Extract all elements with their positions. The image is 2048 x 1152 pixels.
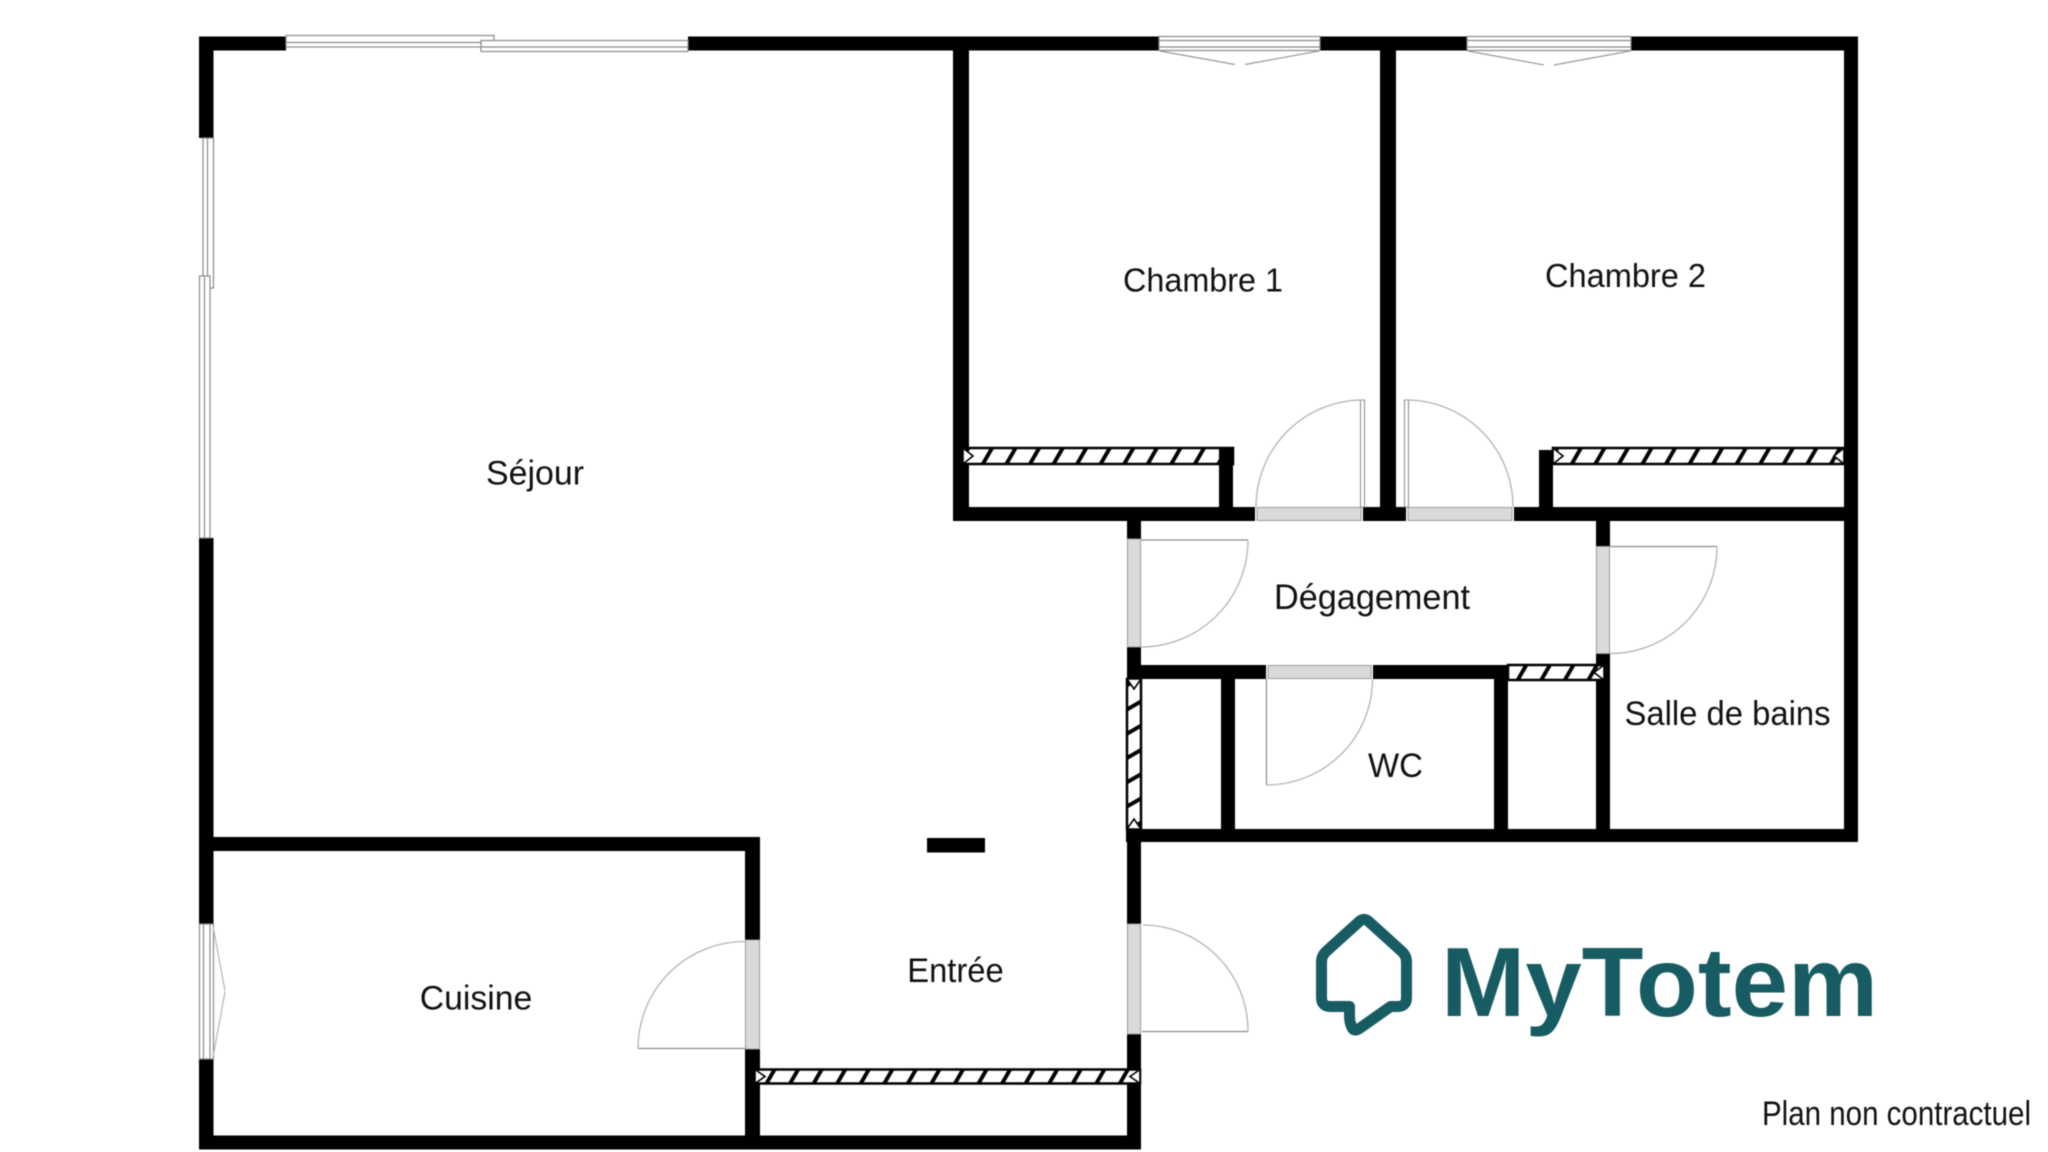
svg-text:Plan non contractuel: Plan non contractuel bbox=[1762, 1095, 2031, 1133]
svg-text:Chambre 1: Chambre 1 bbox=[1123, 263, 1283, 300]
svg-text:Chambre 2: Chambre 2 bbox=[1545, 258, 1706, 295]
svg-text:Cuisine: Cuisine bbox=[420, 980, 533, 1018]
svg-text:WC: WC bbox=[1368, 747, 1423, 785]
svg-text:Dégagement: Dégagement bbox=[1274, 578, 1470, 617]
svg-text:MyTotem: MyTotem bbox=[1441, 927, 1878, 1037]
svg-text:Séjour: Séjour bbox=[486, 455, 584, 493]
svg-text:Entrée: Entrée bbox=[907, 952, 1004, 990]
svg-text:Salle de bains: Salle de bains bbox=[1625, 695, 1831, 733]
